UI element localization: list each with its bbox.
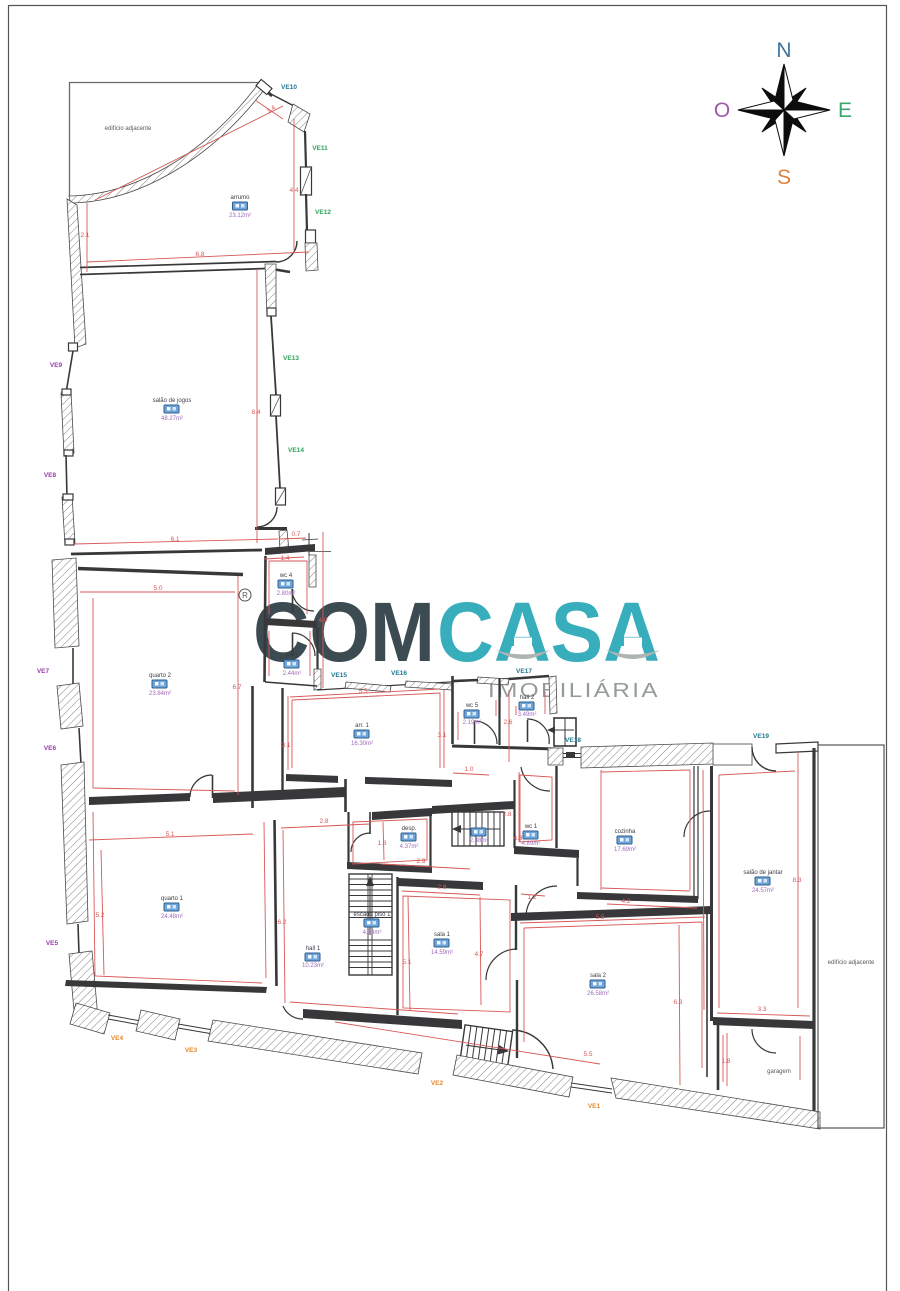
svg-text:arrumo: arrumo <box>230 195 250 201</box>
svg-text:2.19m²: 2.19m² <box>463 720 482 726</box>
svg-text:4.2: 4.2 <box>621 898 630 905</box>
svg-text:5.1: 5.1 <box>165 831 174 838</box>
svg-text:VE17: VE17 <box>516 668 532 675</box>
svg-text:wc 3: wc 3 <box>285 653 299 659</box>
svg-text:3.1: 3.1 <box>437 732 446 739</box>
svg-text:VE7: VE7 <box>37 668 50 675</box>
svg-text:VE15: VE15 <box>331 672 347 679</box>
svg-text:salão de jantar: salão de jantar <box>743 870 782 876</box>
svg-text:VE11: VE11 <box>312 145 328 152</box>
svg-text:hall 1: hall 1 <box>306 946 321 952</box>
svg-text:R: R <box>242 591 248 600</box>
svg-text:6.1: 6.1 <box>170 536 179 543</box>
svg-text:E: E <box>838 99 852 122</box>
svg-text:0.7: 0.7 <box>291 531 300 538</box>
svg-text:cozinha: cozinha <box>615 829 636 835</box>
svg-text:sala 2: sala 2 <box>590 973 607 979</box>
svg-text:24.48m²: 24.48m² <box>161 914 183 920</box>
svg-text:16.30m²: 16.30m² <box>351 741 373 747</box>
svg-text:wc 4: wc 4 <box>279 573 293 579</box>
svg-text:garagem: garagem <box>767 1069 791 1075</box>
svg-text:4.0: 4.0 <box>318 617 327 624</box>
svg-text:5.5: 5.5 <box>583 1051 592 1058</box>
svg-text:escada piso 1: escada piso 1 <box>353 912 391 918</box>
svg-text:17.69m²: 17.69m² <box>614 847 636 853</box>
svg-text:24.57m²: 24.57m² <box>752 888 774 894</box>
svg-text:hall 2: hall 2 <box>520 695 535 701</box>
svg-text:wc 1: wc 1 <box>524 824 538 830</box>
svg-text:2.8: 2.8 <box>319 818 328 825</box>
svg-text:N: N <box>776 39 791 62</box>
svg-text:5.5: 5.5 <box>595 914 604 921</box>
svg-text:quarto 1: quarto 1 <box>161 896 184 902</box>
svg-text:4.37m²: 4.37m² <box>400 844 419 850</box>
svg-text:1.8: 1.8 <box>377 840 386 847</box>
svg-text:wc 5: wc 5 <box>465 703 479 709</box>
svg-text:VE2: VE2 <box>431 1080 444 1087</box>
svg-text:VE14: VE14 <box>288 447 304 454</box>
svg-text:VE12: VE12 <box>315 209 331 216</box>
svg-text:6.2: 6.2 <box>277 919 286 926</box>
svg-text:1.2: 1.2 <box>527 894 536 901</box>
svg-text:23.12m²: 23.12m² <box>229 213 251 219</box>
svg-text:VE4: VE4 <box>111 1035 124 1042</box>
svg-text:VE6: VE6 <box>44 745 57 752</box>
svg-text:salão de jogos: salão de jogos <box>153 398 192 404</box>
svg-text:quarto 2: quarto 2 <box>149 673 172 679</box>
svg-text:8.4: 8.4 <box>251 409 260 416</box>
svg-text:1.0: 1.0 <box>464 766 473 773</box>
svg-text:VE16: VE16 <box>391 670 407 677</box>
svg-text:48.27m²: 48.27m² <box>161 416 183 422</box>
svg-text:2.1: 2.1 <box>80 232 89 239</box>
svg-text:8.3: 8.3 <box>792 877 801 884</box>
svg-text:sala 1: sala 1 <box>434 932 451 938</box>
svg-text:VE1: VE1 <box>588 1103 601 1110</box>
svg-text:2.44m²: 2.44m² <box>283 671 302 677</box>
svg-text:14.59m²: 14.59m² <box>431 950 453 956</box>
svg-text:O: O <box>714 99 730 122</box>
svg-text:4.7: 4.7 <box>474 951 483 958</box>
svg-text:VE13: VE13 <box>283 355 299 362</box>
svg-text:desp.: desp. <box>402 826 417 832</box>
svg-text:2.8: 2.8 <box>502 811 511 818</box>
svg-text:VE9: VE9 <box>50 362 63 369</box>
svg-text:COM: COM <box>253 585 435 679</box>
svg-text:6.8: 6.8 <box>195 251 204 258</box>
svg-text:edifício adjacente: edifício adjacente <box>828 960 875 966</box>
svg-text:S: S <box>777 166 791 189</box>
svg-text:26.58m²: 26.58m² <box>587 991 609 997</box>
svg-text:VE19: VE19 <box>753 733 769 740</box>
svg-text:5.1: 5.1 <box>402 959 411 966</box>
svg-text:edifício adjacente: edifício adjacente <box>105 126 152 132</box>
svg-text:2.80m²: 2.80m² <box>277 591 296 597</box>
svg-text:VE5: VE5 <box>46 940 59 947</box>
svg-text:arr. 1: arr. 1 <box>355 723 369 729</box>
svg-text:IMOBILIÁRIA: IMOBILIÁRIA <box>488 679 660 702</box>
svg-text:4.89m²: 4.89m² <box>522 841 541 847</box>
svg-text:23.84m²: 23.84m² <box>149 691 171 697</box>
svg-text:3.3: 3.3 <box>757 1006 766 1013</box>
svg-text:3.49m²: 3.49m² <box>518 712 537 718</box>
svg-text:VE3: VE3 <box>185 1047 198 1054</box>
svg-text:4.59m²: 4.59m² <box>363 930 382 936</box>
svg-text:5.2: 5.2 <box>95 912 104 919</box>
svg-text:CASA: CASA <box>437 585 660 679</box>
svg-text:2.38m²: 2.38m² <box>470 838 489 844</box>
svg-text:2.6: 2.6 <box>503 719 512 726</box>
svg-text:3.1: 3.1 <box>281 742 290 749</box>
svg-text:2.8: 2.8 <box>437 884 446 891</box>
svg-text:5.5: 5.5 <box>358 688 367 695</box>
svg-text:2.9: 2.9 <box>416 858 425 865</box>
svg-text:4.4: 4.4 <box>289 187 298 194</box>
svg-text:6.7: 6.7 <box>232 684 241 691</box>
svg-text:VE8: VE8 <box>44 472 57 479</box>
svg-text:VE18: VE18 <box>565 737 581 744</box>
svg-text:5.0: 5.0 <box>153 585 162 592</box>
svg-text:6.3: 6.3 <box>673 999 682 1006</box>
svg-text:VE10: VE10 <box>281 84 297 91</box>
svg-text:10.23m²: 10.23m² <box>302 963 324 969</box>
